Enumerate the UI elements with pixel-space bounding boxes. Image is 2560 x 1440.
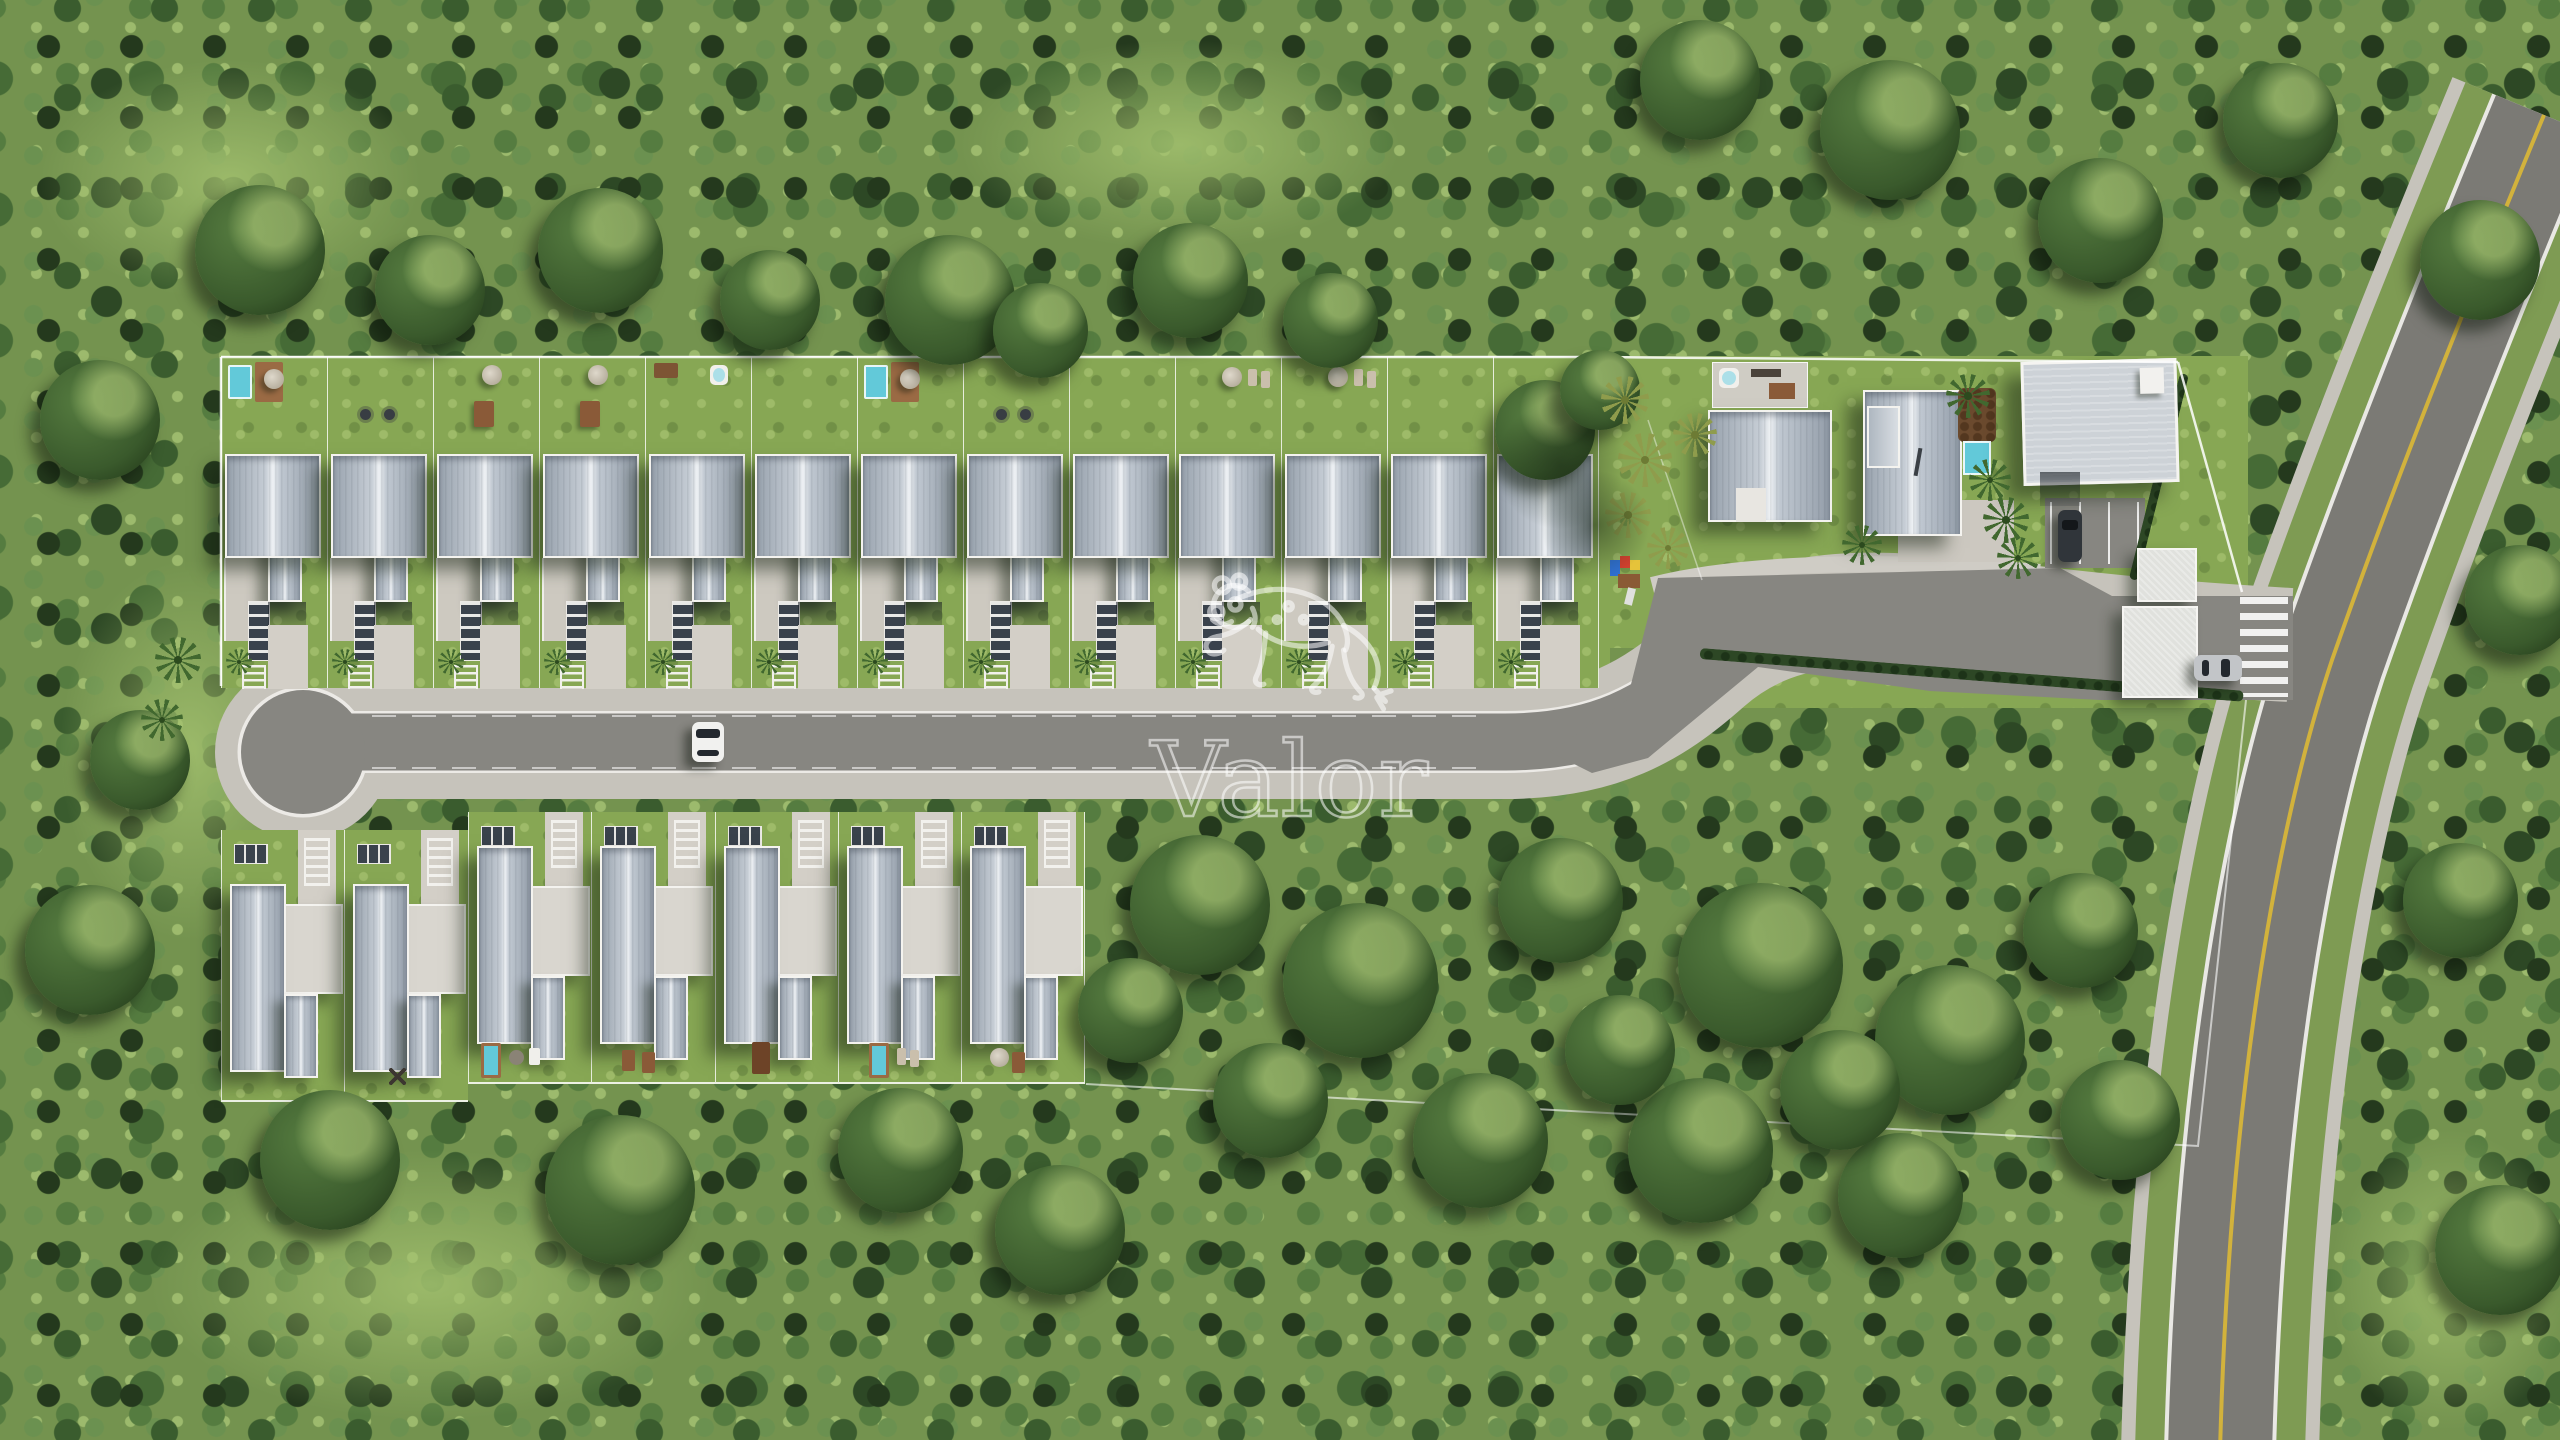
palm-tree: [1601, 376, 1649, 424]
palm-tree: [1983, 497, 2029, 543]
tree: [545, 1115, 695, 1265]
tree: [993, 283, 1088, 378]
tree: [1213, 1043, 1328, 1158]
aerial-masterplan-render: Valor: [0, 0, 2560, 1440]
tree: [375, 235, 485, 345]
tree: [995, 1165, 1125, 1295]
tree: [195, 185, 325, 315]
tree-shadow: [1540, 470, 1650, 580]
watermark-brand-text: Valor: [1140, 728, 1440, 832]
tree: [260, 1090, 400, 1230]
tree: [2223, 63, 2338, 178]
tree: [40, 360, 160, 480]
tree: [538, 188, 663, 313]
tree: [1838, 1133, 1963, 1258]
palm-tree: [1673, 413, 1717, 457]
tree: [1283, 273, 1378, 368]
tree: [1283, 903, 1438, 1058]
tree: [1780, 1030, 1900, 1150]
tree: [2465, 545, 2560, 655]
tree: [2435, 1185, 2560, 1315]
tree: [1133, 223, 1248, 338]
palm-tree: [141, 699, 183, 741]
palm-tree: [1997, 537, 2039, 579]
palm-tree: [155, 637, 201, 683]
tree: [2403, 843, 2518, 958]
tree: [2038, 158, 2163, 283]
watermark: Valor: [1140, 562, 1440, 852]
palm-tree: [1946, 374, 1990, 418]
tree: [1413, 1073, 1548, 1208]
tree: [2420, 200, 2540, 320]
tree: [1820, 60, 1960, 200]
tree: [1640, 20, 1760, 140]
tree: [1498, 838, 1623, 963]
palm-tree: [1842, 525, 1882, 565]
tree: [2060, 1060, 2180, 1180]
tree: [25, 885, 155, 1015]
jaguar-line-art-icon: [1146, 570, 1412, 732]
tree: [1078, 958, 1183, 1063]
tree: [720, 250, 820, 350]
tree: [2023, 873, 2138, 988]
tree: [1130, 835, 1270, 975]
palm-tree: [1647, 527, 1689, 569]
palm-tree: [1969, 459, 2011, 501]
tree: [1678, 883, 1843, 1048]
tree: [838, 1088, 963, 1213]
tree: [1628, 1078, 1773, 1223]
tree: [1565, 995, 1675, 1105]
